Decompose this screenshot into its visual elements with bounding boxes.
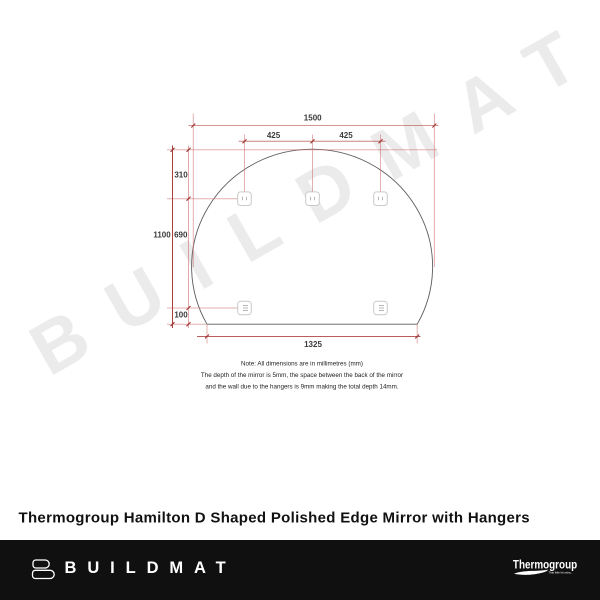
svg-text:1100: 1100 xyxy=(153,231,171,240)
svg-text:1500: 1500 xyxy=(304,113,322,122)
svg-text:310: 310 xyxy=(174,171,188,180)
svg-text:Note: All dimensions are in mi: Note: All dimensions are in millimetres … xyxy=(241,360,363,367)
svg-text:That little bit extra...: That little bit extra... xyxy=(549,570,574,574)
svg-text:425: 425 xyxy=(339,131,353,140)
svg-text:and the wall due to the hanger: and the wall due to the hangers is 9mm m… xyxy=(205,384,398,391)
svg-text:1325: 1325 xyxy=(304,340,322,349)
svg-text:Thermogroup Hamilton D Shaped: Thermogroup Hamilton D Shaped Polished E… xyxy=(19,510,530,527)
svg-text:100: 100 xyxy=(174,310,188,319)
svg-text:690: 690 xyxy=(174,231,188,240)
svg-text:The depth of the mirror is 5mm: The depth of the mirror is 5mm, the spac… xyxy=(201,372,403,379)
svg-text:BUILDMAT: BUILDMAT xyxy=(65,559,237,577)
svg-text:425: 425 xyxy=(267,131,281,140)
